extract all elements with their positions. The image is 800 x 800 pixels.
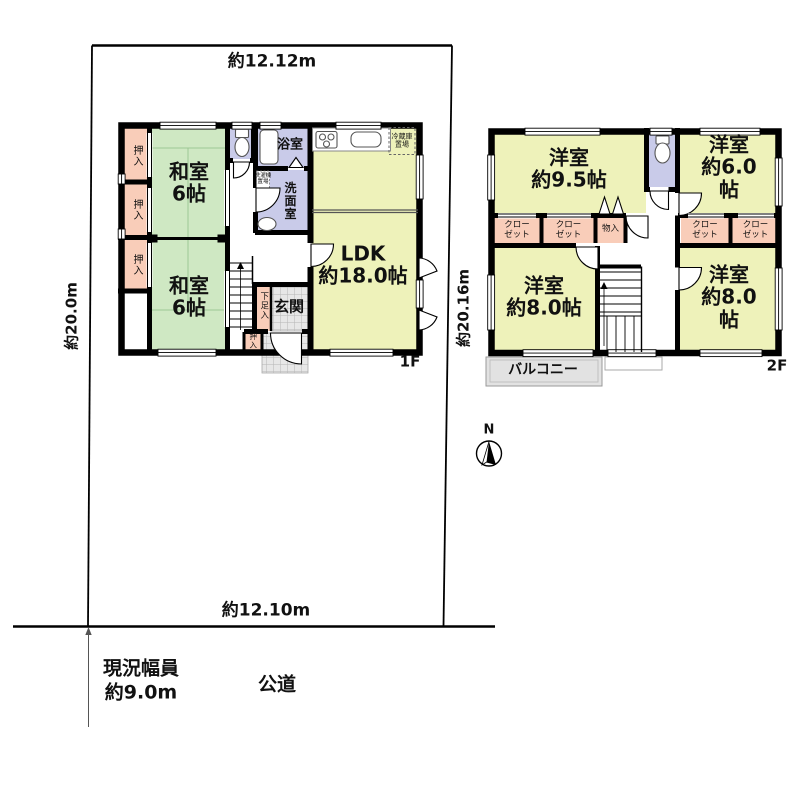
dim-bottom-label: 約12.10m	[222, 601, 311, 620]
bathtub-icon	[260, 130, 278, 164]
dim-left-label: 約20.0m	[64, 282, 81, 350]
compass-n-label: N	[484, 424, 495, 439]
casement-window-bottom	[419, 310, 437, 330]
toilet-bowl-2f-icon	[655, 143, 670, 163]
closet-2f-4-label: クロー ゼット	[743, 220, 769, 240]
toilet-bowl-1f-icon	[235, 138, 249, 157]
road-width-measure-line	[85, 627, 91, 727]
casement-window-top	[419, 258, 437, 278]
porch-roof-outline	[605, 357, 662, 370]
road-width-label: 現況幅員 約9.0m	[103, 657, 179, 705]
oshiire-3-label: 押入	[131, 254, 141, 276]
room-ne-label: 洋室 約6.0帖	[694, 133, 765, 200]
floor1-stairs	[230, 262, 252, 330]
washitsu-top-label: 和室 6帖	[169, 161, 209, 206]
bath-label: 浴室	[277, 139, 303, 154]
closet-2f-3-label: クロー ゼット	[692, 220, 718, 240]
toilet-2f-door-arc	[650, 191, 669, 210]
oshiire-4-label: 押入	[249, 333, 257, 350]
washroom-label: 洗面室	[284, 182, 296, 221]
shoe-closet-label: 下足入	[259, 292, 268, 321]
closet-2f-2-label: クロー ゼット	[556, 220, 582, 240]
kitchen-counter	[313, 128, 391, 151]
floorplan-page: 約12.12m 約20.0m 約20.16m 約12.10m 現況幅員 約9.0…	[0, 0, 800, 800]
road-label: 公道	[258, 674, 296, 695]
dim-right-label: 約20.16m	[456, 269, 473, 347]
washitsu-bottom-label: 和室 6帖	[169, 275, 209, 320]
compass	[477, 441, 502, 466]
ldk-label: LDK 約18.0帖	[318, 243, 407, 288]
room-sw-label: 洋室 約8.0帖	[506, 275, 581, 320]
room-nw-door-arc	[626, 216, 648, 238]
fridge-space-label: 冷蔵庫 置場	[392, 133, 413, 150]
closet-2f-1-label: クロー ゼット	[504, 220, 530, 240]
oshiire-1-label: 押入	[131, 145, 141, 167]
floor2-stairs	[600, 267, 642, 353]
toilet-door-arc	[234, 162, 250, 178]
toilet-tank-1f	[236, 130, 249, 138]
floor2-label: 2F	[767, 358, 788, 375]
balcony-label: バルコニー	[508, 363, 578, 379]
monoire-label: 物入	[602, 225, 619, 235]
washbasin-icon	[258, 218, 276, 231]
dim-top-label: 約12.12m	[228, 52, 317, 71]
washer-space-label: 洗濯機 置場	[255, 173, 272, 187]
floor1-label: 1F	[400, 354, 421, 371]
room-nw-label: 洋室 約9.5帖	[531, 147, 606, 192]
sink-icon	[351, 132, 381, 147]
oshiire-2-label: 押入	[131, 199, 141, 221]
room-ldk	[312, 128, 418, 350]
floor2-fixtures	[655, 136, 670, 163]
room-se-label: 洋室 約8.0帖	[694, 263, 765, 330]
genkan-label: 玄関	[274, 299, 304, 316]
